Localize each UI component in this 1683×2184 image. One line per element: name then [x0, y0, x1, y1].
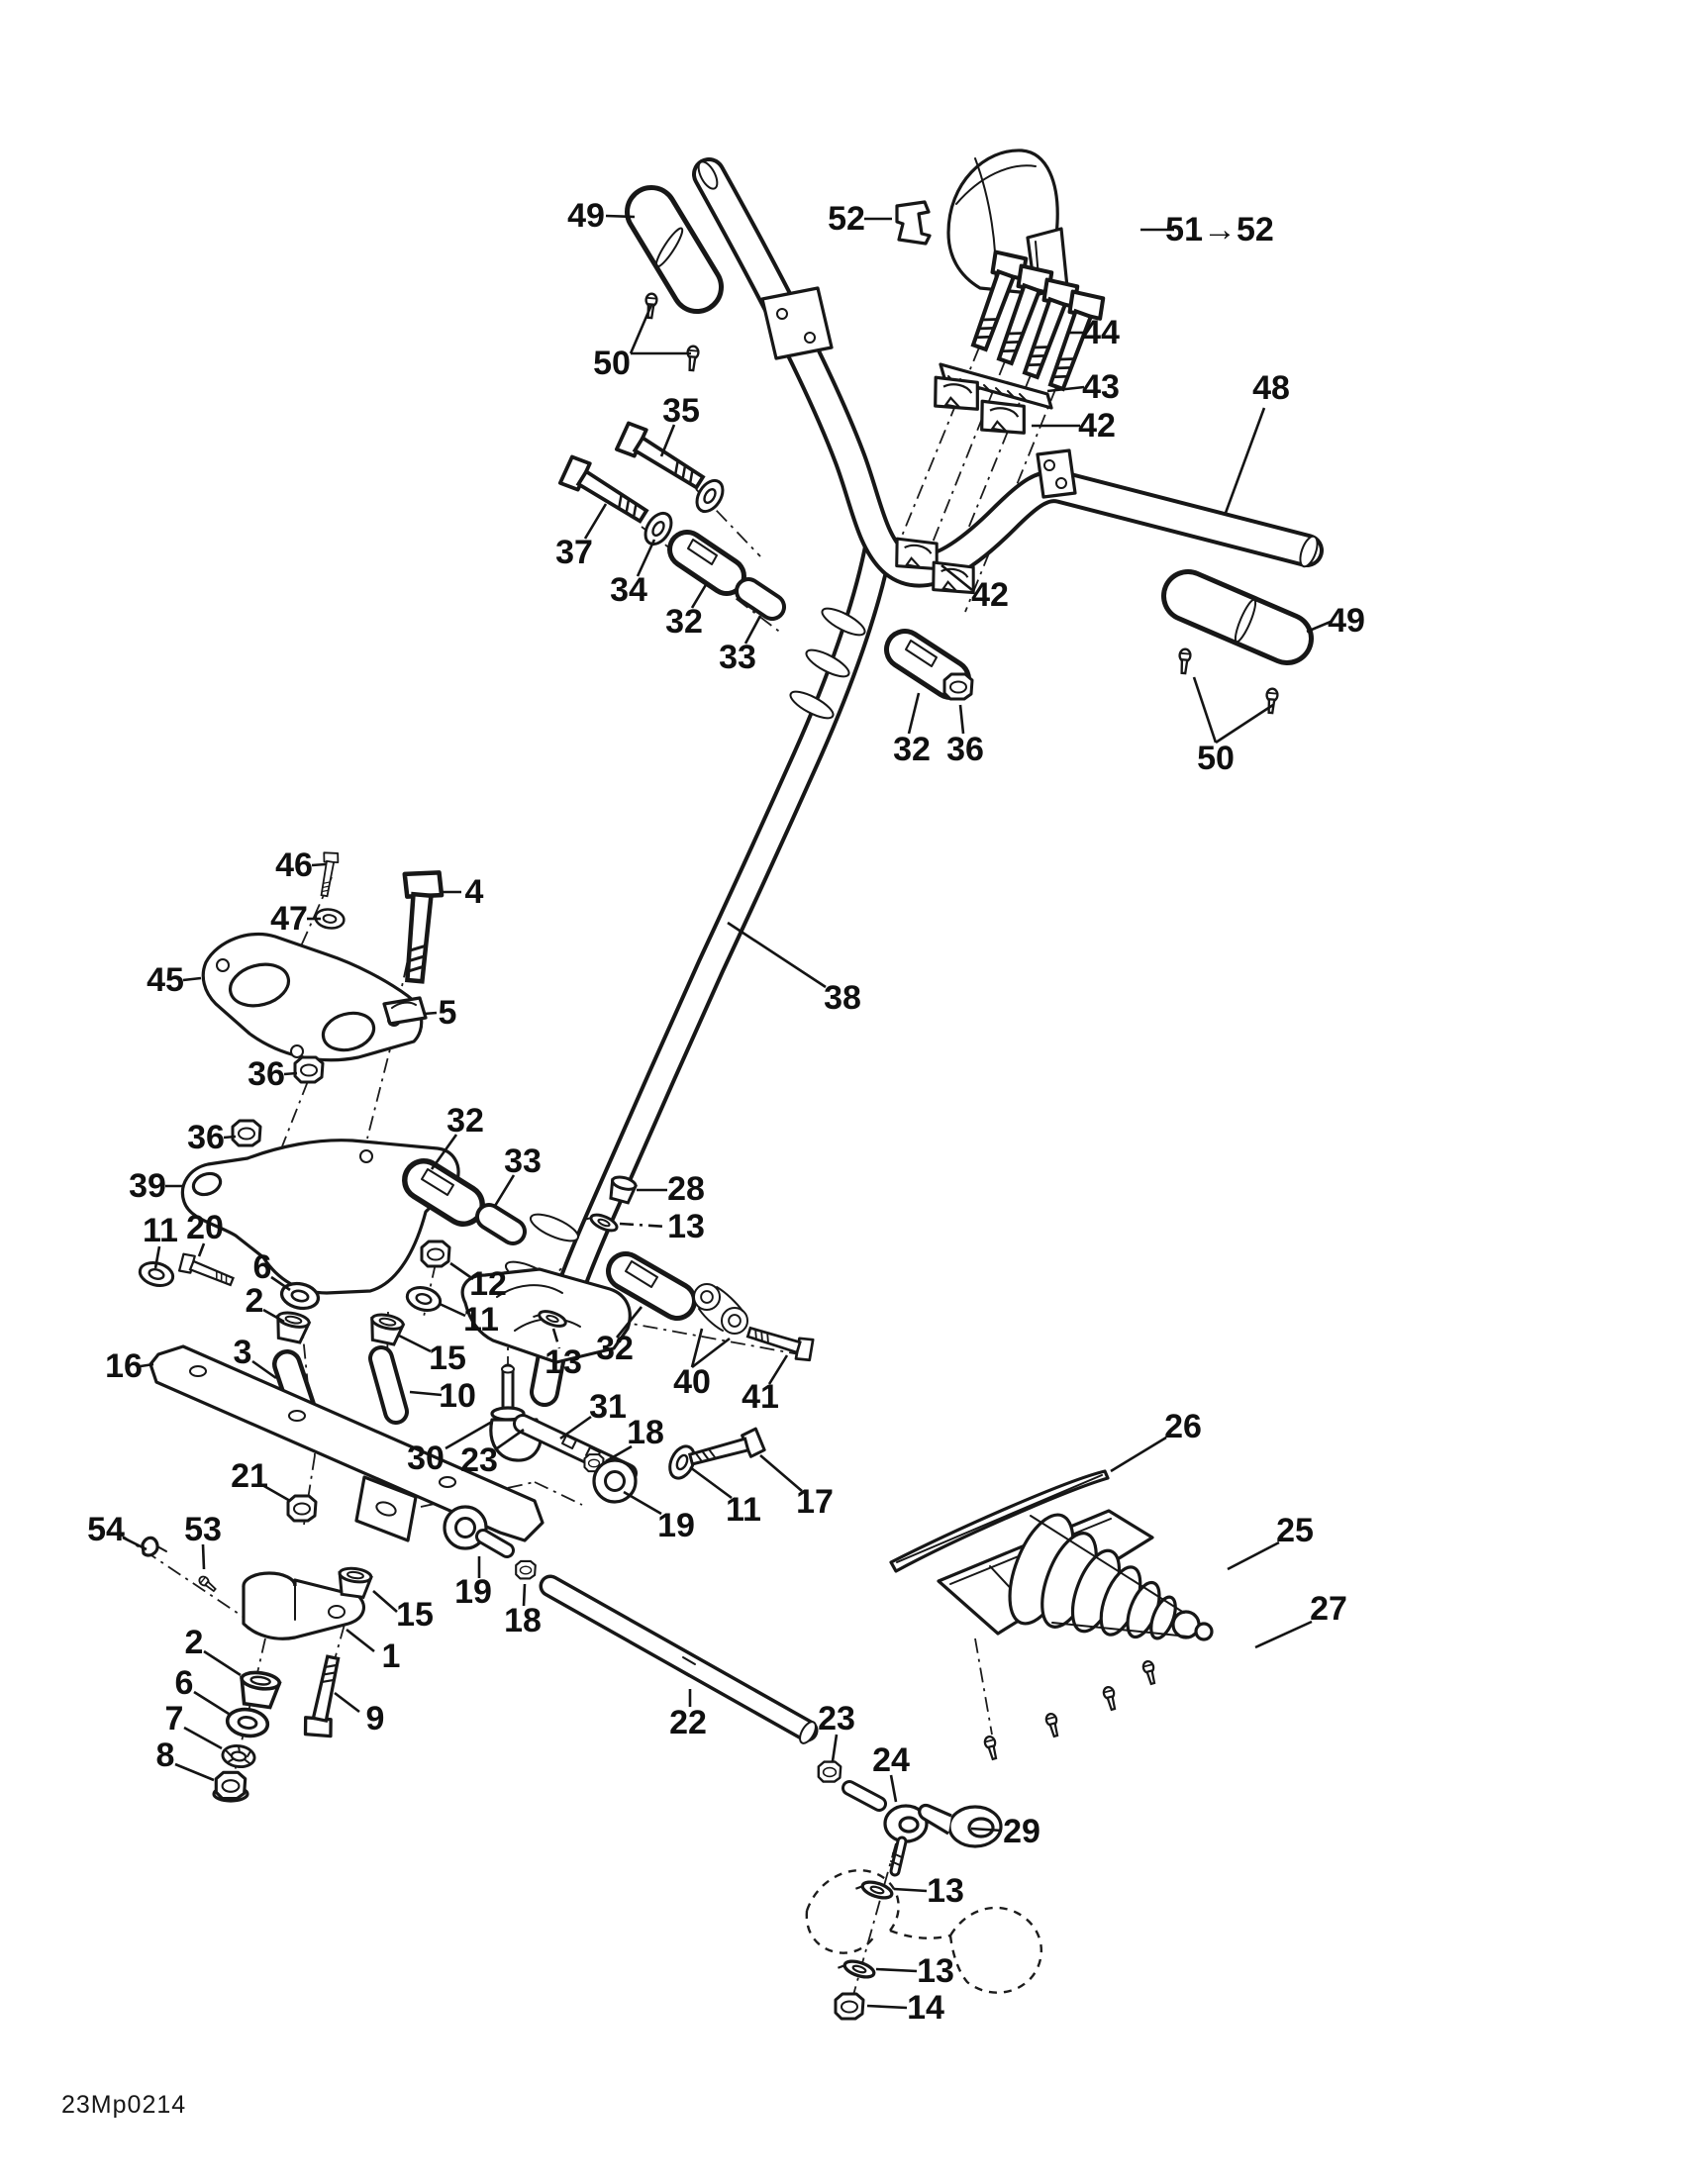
nut-21: [288, 1496, 316, 1521]
part-number-label: 13: [667, 1208, 705, 1245]
grip-screw-50: [686, 346, 699, 370]
leader-line: [909, 693, 919, 734]
part-number-label: 7: [165, 1700, 184, 1737]
bushing-2: [273, 1310, 310, 1343]
bolt-41: [745, 1321, 816, 1362]
part-number-label: 20: [186, 1209, 224, 1246]
leader-line: [312, 864, 326, 865]
leader-line: [960, 705, 963, 734]
part-number-label: 13: [544, 1343, 582, 1381]
part-number-label: 13: [927, 1872, 964, 1910]
sleeve-32a: [687, 540, 727, 576]
bolt-37: [557, 453, 652, 530]
part-number-label: 23: [460, 1441, 498, 1479]
part-number-label: 36: [247, 1055, 285, 1093]
washer-13: [838, 1956, 876, 1980]
part-number-label: 19: [657, 1507, 695, 1544]
part-number-label: 52: [828, 200, 865, 238]
part-number-label: 12: [469, 1265, 507, 1303]
leader-line: [175, 1764, 214, 1780]
part-number-label: 36: [187, 1119, 225, 1156]
part-number-label: 11: [143, 1212, 178, 1249]
part-number-label: 40: [673, 1363, 711, 1401]
part-number-label: 2: [185, 1624, 204, 1661]
part-number-label: 32: [893, 731, 931, 768]
part-number-label: 30: [407, 1439, 445, 1477]
leader-line: [560, 1417, 591, 1439]
part-number-label: 15: [429, 1340, 466, 1377]
part-number-label: 32: [665, 603, 703, 641]
leader-line: [399, 1336, 431, 1351]
part-number-label: 8: [156, 1737, 175, 1774]
leader-line: [620, 1224, 667, 1227]
upper-bracket-45: [203, 935, 421, 1060]
part-number-label: 50: [593, 345, 631, 382]
spacer-33b: [489, 1217, 513, 1232]
exploded-steering-diagram: 495035373432335251→524443424842323649503…: [0, 0, 1683, 2184]
leader-line: [728, 923, 826, 987]
rod-end-24: [849, 1788, 927, 1871]
washer-6: [226, 1707, 269, 1738]
jam-nut-18: [516, 1561, 536, 1579]
part-number-label: 38: [824, 979, 861, 1017]
part-number-label: 43: [1082, 368, 1120, 406]
leader-line: [867, 2006, 907, 2008]
part-number-label: 46: [275, 846, 313, 884]
part-number-label: 17: [796, 1483, 834, 1521]
nut-14: [836, 1994, 863, 2019]
boot-screw-27: [1045, 1713, 1061, 1737]
nut-36: [233, 1121, 260, 1145]
clamp-half-5: [384, 998, 426, 1024]
bushing-2: [239, 1670, 281, 1708]
bolt-46: [317, 851, 340, 897]
part-number-label: 48: [1252, 369, 1290, 407]
sleeve-32d: [626, 1261, 677, 1301]
bushing-15: [337, 1566, 372, 1598]
leader-line: [1047, 387, 1084, 391]
part-number-label: 44: [1082, 314, 1120, 351]
link-disc-40: [722, 1308, 747, 1334]
leader-line: [224, 1137, 236, 1138]
part-number-label: 1: [382, 1638, 401, 1675]
part-number-label: 26: [1164, 1408, 1202, 1445]
bar-right-tab: [1038, 450, 1075, 497]
part-number-label: 34: [610, 571, 647, 609]
part-number-label: 32: [446, 1102, 484, 1140]
leader-line: [606, 216, 635, 217]
pad-clip-52: [897, 202, 930, 244]
part-number-label: 11: [726, 1491, 761, 1529]
part-number-label: 25: [1276, 1512, 1314, 1549]
part-number-label: 49: [567, 197, 605, 235]
part-number-label: 42: [971, 576, 1009, 614]
part-number-label: 47: [270, 900, 308, 938]
part-number-label: 49: [1328, 602, 1365, 640]
leader-line: [183, 978, 201, 980]
part-number-label: 13: [917, 1952, 954, 1990]
leader-line: [631, 305, 651, 353]
boot-screw-27: [1103, 1686, 1119, 1711]
bar-left-tab: [762, 288, 832, 358]
leader-line: [1194, 677, 1216, 743]
boot-screw-27: [1142, 1660, 1158, 1685]
parts-diagram-page: { "figure_code": "23Mp0214", "diagram": …: [0, 0, 1683, 2184]
right-grip-49: [1188, 596, 1287, 644]
part-number-label: 18: [627, 1414, 664, 1451]
leader-line: [424, 1013, 437, 1014]
left-grip-49: [651, 212, 697, 287]
grip-screw-50: [1178, 648, 1191, 673]
part-number-label: 22: [669, 1704, 707, 1741]
leader-line: [335, 1693, 359, 1712]
leader-line: [891, 1775, 896, 1802]
nut-12: [422, 1241, 449, 1266]
part-number-label: 6: [175, 1664, 194, 1702]
part-number-label: 5: [439, 994, 457, 1032]
leader-line: [346, 1630, 374, 1651]
leader-line: [1228, 1542, 1279, 1569]
leader-line: [284, 1073, 297, 1074]
part-number-label: 53: [184, 1511, 222, 1548]
part-number-label: 37: [555, 534, 593, 571]
lock-washer-7: [222, 1743, 256, 1768]
steering-column-38: [462, 543, 879, 1392]
part-number-label: 42: [1078, 407, 1116, 445]
part-number-label: 54: [87, 1511, 125, 1548]
flange-nut-8: [214, 1772, 247, 1801]
part-number-label: 16: [105, 1347, 143, 1385]
part-number-label: 32: [596, 1330, 634, 1367]
cap-nut-28: [608, 1175, 637, 1204]
leader-line: [1111, 1438, 1166, 1471]
leader-line: [1255, 1622, 1312, 1647]
part-number-label: 45: [147, 961, 184, 999]
part-number-label: 29: [1003, 1813, 1040, 1850]
part-number-label: 33: [719, 639, 756, 676]
screw-53: [198, 1575, 218, 1594]
part-number-label: 27: [1310, 1590, 1347, 1628]
part-number-label: 11: [463, 1301, 499, 1339]
washer-11: [405, 1284, 444, 1314]
part-number-label: 18: [504, 1602, 542, 1639]
part-number-label: 41: [742, 1378, 779, 1416]
leader-line: [894, 1889, 927, 1891]
leader-line: [440, 1304, 465, 1316]
part-number-label: 24: [872, 1741, 910, 1779]
part-number-label: 2: [246, 1282, 264, 1320]
ball-socket-29: [920, 1805, 1001, 1846]
part-number-label: 23: [818, 1700, 855, 1737]
nut-23: [819, 1762, 841, 1782]
figure-code: 23Mp0214: [61, 2091, 186, 2120]
part-number-label: 10: [439, 1377, 476, 1415]
leader-line: [194, 1692, 229, 1714]
part-number-label: 31: [589, 1388, 627, 1426]
bolt-35: [614, 420, 709, 496]
leader-line: [1216, 705, 1273, 743]
leader-line: [624, 1492, 661, 1514]
bushing-15: [367, 1312, 404, 1345]
washer-13: [855, 1877, 894, 1901]
leader-line: [204, 1651, 241, 1675]
link-disc-40: [694, 1284, 720, 1310]
bolt-17: [688, 1428, 765, 1471]
part-number-label: 4: [465, 873, 484, 911]
part-number-label: 50: [1197, 740, 1235, 777]
spacer-tube-10: [381, 1358, 396, 1412]
part-number-label: 19: [454, 1573, 492, 1611]
part-number-label: 14: [907, 1989, 944, 2027]
nut-36: [295, 1057, 323, 1082]
bar-clamp-42: [975, 395, 1031, 441]
part-number-label: 3: [234, 1334, 252, 1371]
leader-line: [876, 1969, 917, 1971]
part-number-label: 39: [129, 1167, 166, 1205]
bolt-4: [395, 869, 444, 982]
part-number-label: 51→52: [1165, 211, 1274, 248]
part-number-label: 33: [504, 1142, 542, 1180]
leader-line: [833, 1735, 837, 1761]
bolt-20: [177, 1252, 236, 1291]
leader-line: [1226, 408, 1264, 513]
leader-line: [184, 1728, 222, 1748]
nut-36: [944, 674, 972, 699]
part-number-label: 21: [231, 1457, 268, 1495]
pushpin-54: [143, 1538, 166, 1555]
leader-line: [373, 1591, 397, 1612]
boot-screw-27: [984, 1736, 1000, 1760]
part-number-label: 28: [667, 1170, 705, 1208]
sleeve-32b: [905, 641, 950, 679]
leader-line: [410, 1392, 442, 1395]
part-number-label: 15: [396, 1596, 434, 1634]
spacer-33a: [748, 591, 772, 607]
part-number-label: 9: [366, 1700, 385, 1737]
part-number-label: 36: [946, 731, 984, 768]
part-number-label: 35: [662, 392, 700, 430]
part-number-label: 6: [253, 1248, 272, 1286]
